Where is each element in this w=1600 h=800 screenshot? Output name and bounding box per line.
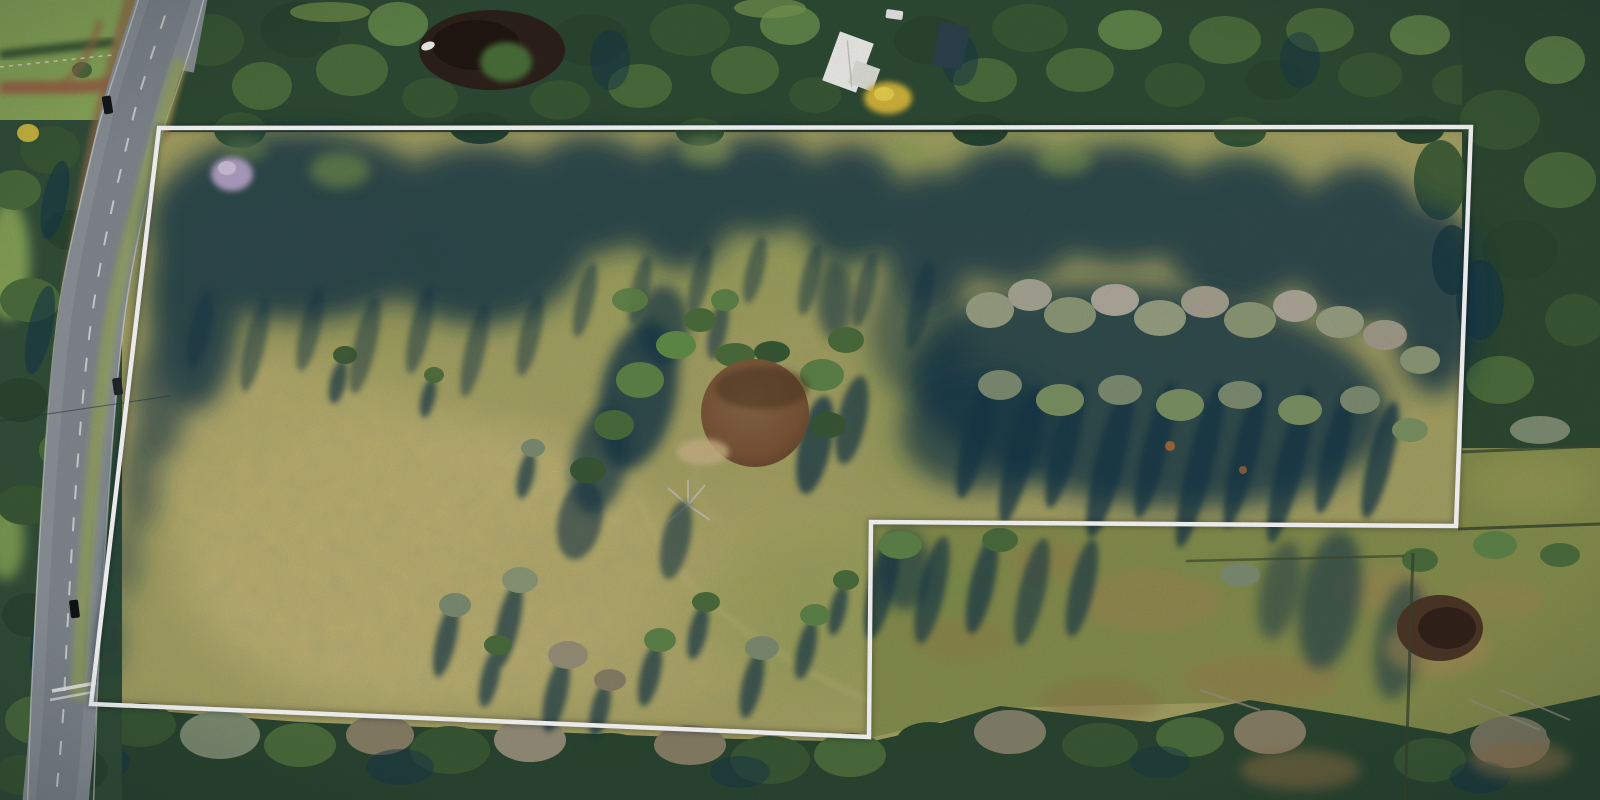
aerial-photo bbox=[0, 0, 1600, 800]
vignette bbox=[0, 0, 1600, 800]
